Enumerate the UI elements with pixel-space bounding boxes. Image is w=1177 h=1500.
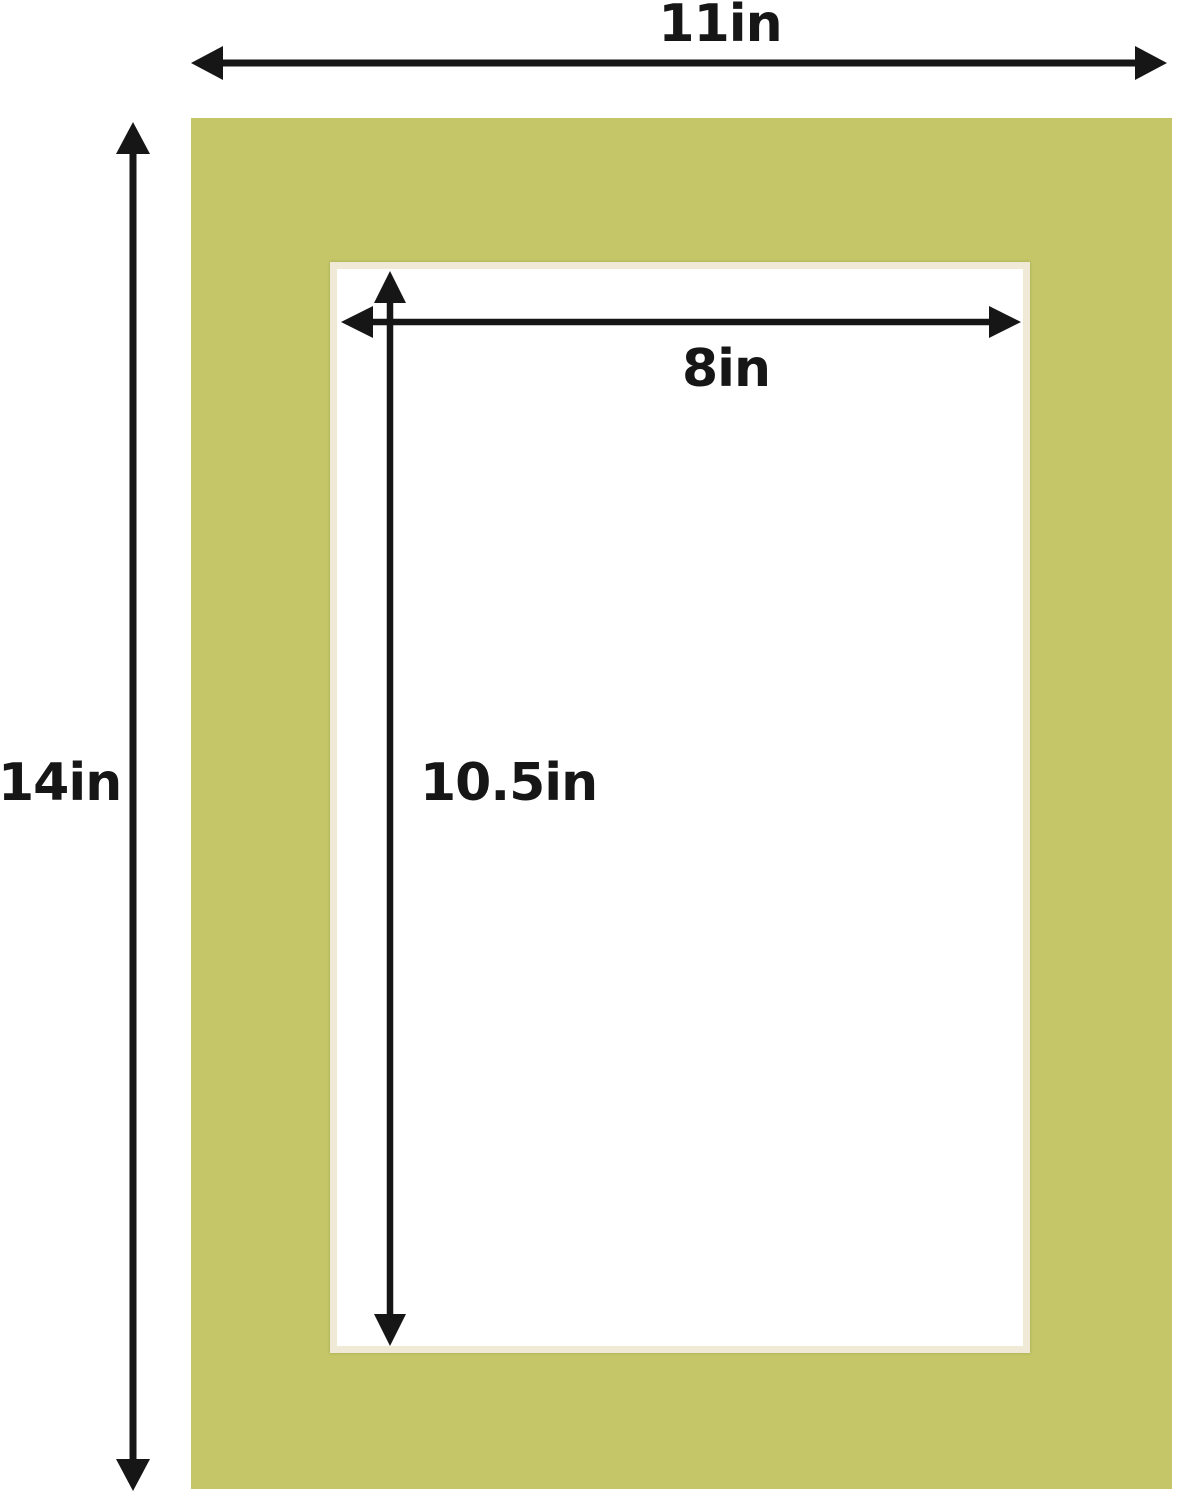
overall-height-label: 14in — [0, 757, 121, 809]
diagram-stage: 11in 14in 8in 10.5in — [0, 0, 1177, 1500]
opening-height-label: 10.5in — [420, 757, 597, 809]
overall-width-label: 11in — [658, 0, 781, 50]
opening-width-label: 8in — [682, 343, 770, 395]
